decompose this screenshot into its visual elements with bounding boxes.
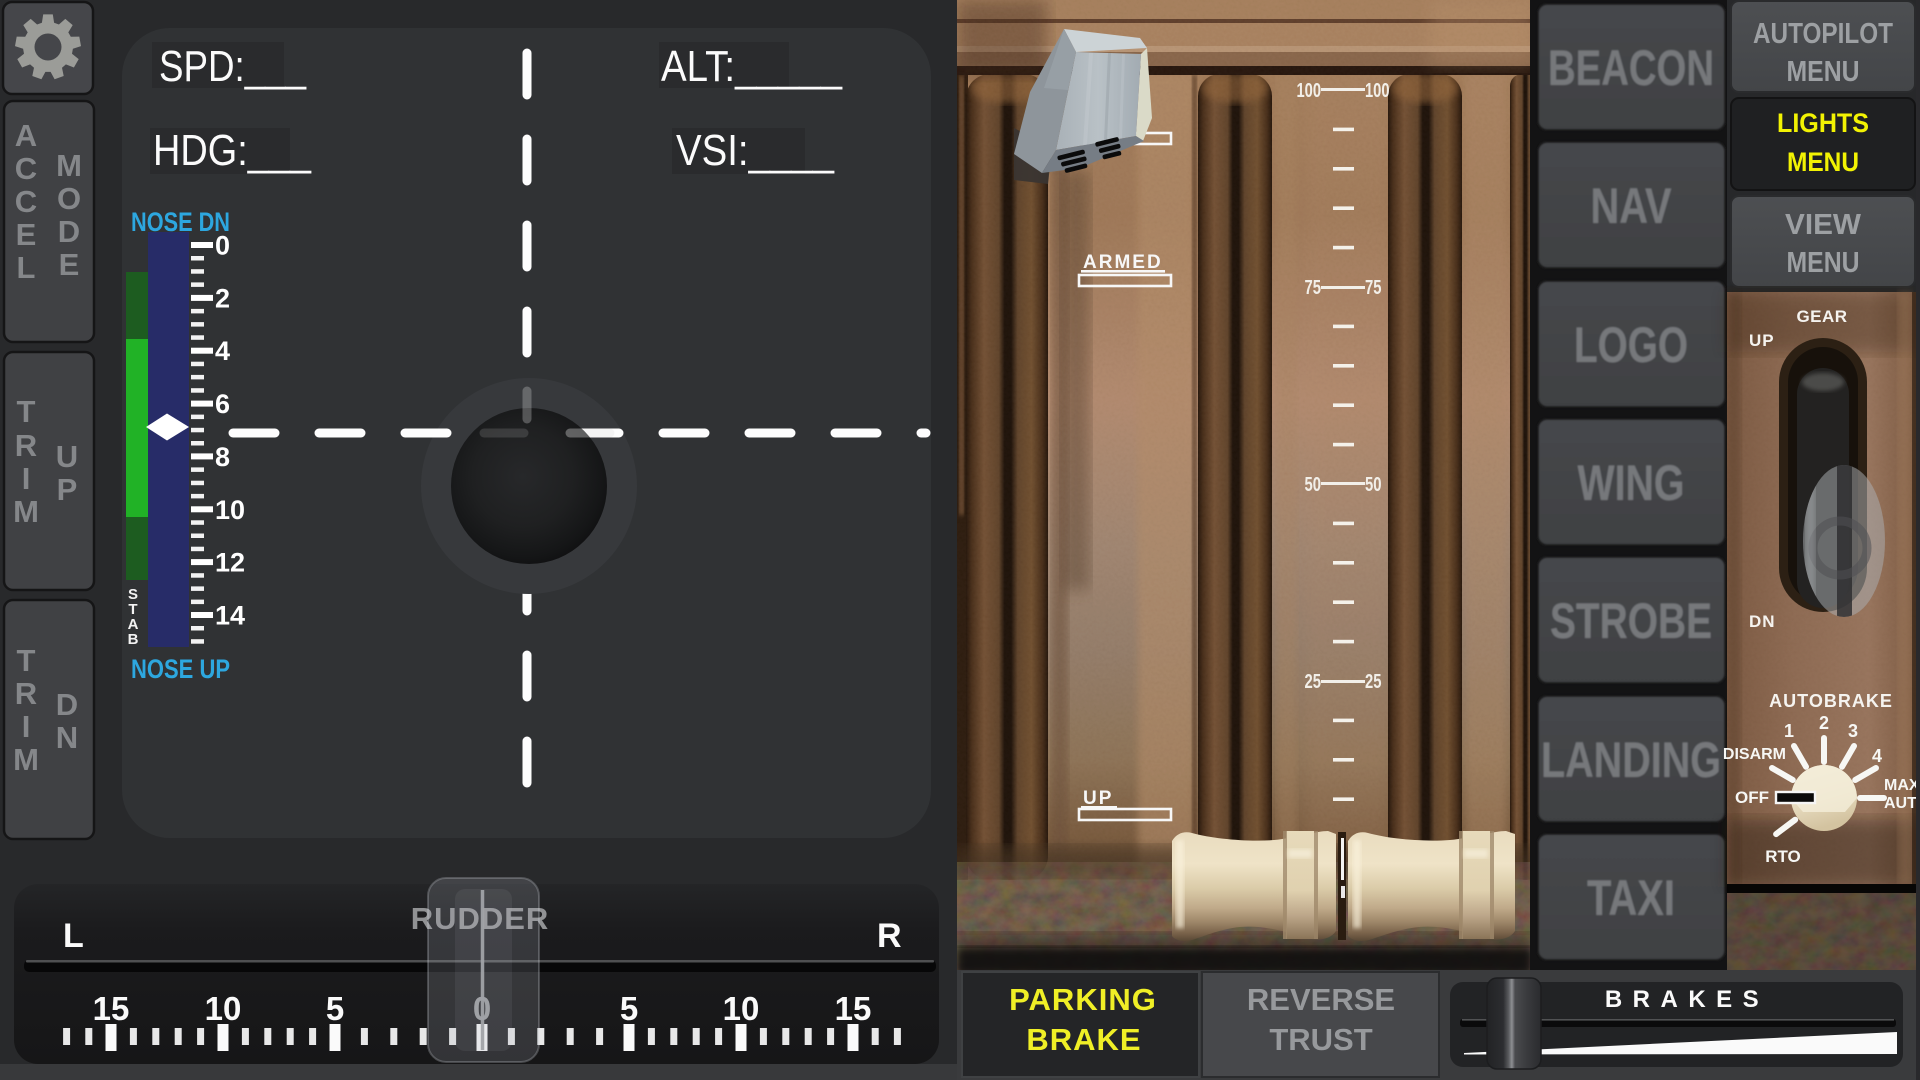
svg-text:NOSE UP: NOSE UP xyxy=(131,654,230,684)
svg-text:BEACON: BEACON xyxy=(1548,40,1714,96)
svg-text:4: 4 xyxy=(215,336,230,366)
svg-text:UP: UP xyxy=(1749,331,1775,350)
svg-text:4: 4 xyxy=(1872,746,1882,766)
svg-text:R: R xyxy=(15,676,37,711)
svg-text:75: 75 xyxy=(1305,277,1322,299)
svg-text:14: 14 xyxy=(215,601,245,631)
svg-text:C: C xyxy=(15,151,37,186)
svg-text:10: 10 xyxy=(205,990,242,1027)
svg-text:3: 3 xyxy=(1848,721,1858,741)
svg-text:A: A xyxy=(15,118,37,153)
svg-text:TRUST: TRUST xyxy=(1269,1022,1372,1057)
svg-text:DN: DN xyxy=(1749,612,1776,631)
svg-text:I: I xyxy=(22,709,31,744)
svg-text:WING: WING xyxy=(1578,455,1685,511)
svg-text:12: 12 xyxy=(215,548,245,578)
svg-text:AUTOBRAKE: AUTOBRAKE xyxy=(1769,691,1893,711)
svg-text:T: T xyxy=(17,643,36,678)
svg-text:M: M xyxy=(13,494,39,529)
svg-text:R: R xyxy=(15,428,37,463)
svg-text:REVERSE: REVERSE xyxy=(1247,982,1395,1017)
svg-text:15: 15 xyxy=(93,990,130,1027)
svg-text:C: C xyxy=(15,184,37,219)
svg-text:VSI:____: VSI:____ xyxy=(676,126,834,175)
svg-text:STROBE: STROBE xyxy=(1550,593,1712,649)
svg-text:D: D xyxy=(56,687,78,722)
svg-text:OFF: OFF xyxy=(1735,788,1769,807)
svg-text:10: 10 xyxy=(723,990,760,1027)
svg-text:0: 0 xyxy=(215,231,230,261)
svg-text:AUTO: AUTO xyxy=(1884,795,1920,812)
svg-text:MAX: MAX xyxy=(1884,777,1920,794)
svg-text:D: D xyxy=(58,214,80,249)
svg-text:BRAKES: BRAKES xyxy=(1605,986,1769,1013)
svg-text:GEAR: GEAR xyxy=(1796,307,1847,326)
svg-text:HDG:___: HDG:___ xyxy=(153,126,311,175)
svg-text:2: 2 xyxy=(215,283,230,313)
svg-text:1: 1 xyxy=(1784,721,1794,741)
svg-text:M: M xyxy=(56,148,82,183)
svg-text:15: 15 xyxy=(835,990,872,1027)
svg-text:PARKING: PARKING xyxy=(1009,982,1157,1017)
svg-text:B: B xyxy=(128,631,139,648)
svg-text:BRAKE: BRAKE xyxy=(1026,1022,1141,1057)
svg-text:AUTOPILOT: AUTOPILOT xyxy=(1753,18,1893,50)
svg-text:UP: UP xyxy=(1083,788,1113,809)
svg-text:LIGHTS: LIGHTS xyxy=(1777,108,1869,138)
svg-text:R: R xyxy=(877,917,902,955)
svg-text:MENU: MENU xyxy=(1787,147,1859,177)
svg-text:50: 50 xyxy=(1365,474,1382,496)
svg-text:TAXI: TAXI xyxy=(1587,870,1675,926)
svg-text:P: P xyxy=(57,472,78,507)
svg-text:50: 50 xyxy=(1305,474,1322,496)
svg-text:M: M xyxy=(13,742,39,777)
svg-text:MENU: MENU xyxy=(1787,247,1860,279)
svg-text:VIEW: VIEW xyxy=(1785,209,1862,241)
svg-text:LOGO: LOGO xyxy=(1574,317,1688,373)
svg-text:ALT:_____: ALT:_____ xyxy=(661,42,842,91)
svg-text:10: 10 xyxy=(215,495,245,525)
svg-text:8: 8 xyxy=(215,442,230,472)
svg-text:5: 5 xyxy=(326,990,344,1027)
svg-text:25: 25 xyxy=(1305,671,1322,693)
svg-text:75: 75 xyxy=(1365,277,1382,299)
svg-text:MENU: MENU xyxy=(1787,56,1860,88)
svg-text:T: T xyxy=(17,394,36,429)
svg-text:100: 100 xyxy=(1297,80,1322,102)
svg-text:100: 100 xyxy=(1365,80,1390,102)
svg-text:L: L xyxy=(63,917,84,955)
svg-text:E: E xyxy=(59,247,80,282)
svg-text:6: 6 xyxy=(215,389,230,419)
svg-text:L: L xyxy=(17,250,36,285)
svg-text:I: I xyxy=(22,461,31,496)
svg-text:DISARM: DISARM xyxy=(1723,746,1786,763)
svg-text:2: 2 xyxy=(1819,713,1829,733)
svg-text:ARMED: ARMED xyxy=(1083,252,1163,273)
svg-text:25: 25 xyxy=(1365,671,1382,693)
svg-text:E: E xyxy=(16,217,37,252)
svg-text:NAV: NAV xyxy=(1591,178,1673,234)
svg-text:SPD:___: SPD:___ xyxy=(159,42,306,91)
svg-text:RTO: RTO xyxy=(1765,847,1801,866)
svg-text:N: N xyxy=(56,720,78,755)
svg-text:O: O xyxy=(57,181,81,216)
svg-text:LANDING: LANDING xyxy=(1541,732,1721,788)
svg-text:5: 5 xyxy=(620,990,638,1027)
svg-text:U: U xyxy=(56,439,78,474)
